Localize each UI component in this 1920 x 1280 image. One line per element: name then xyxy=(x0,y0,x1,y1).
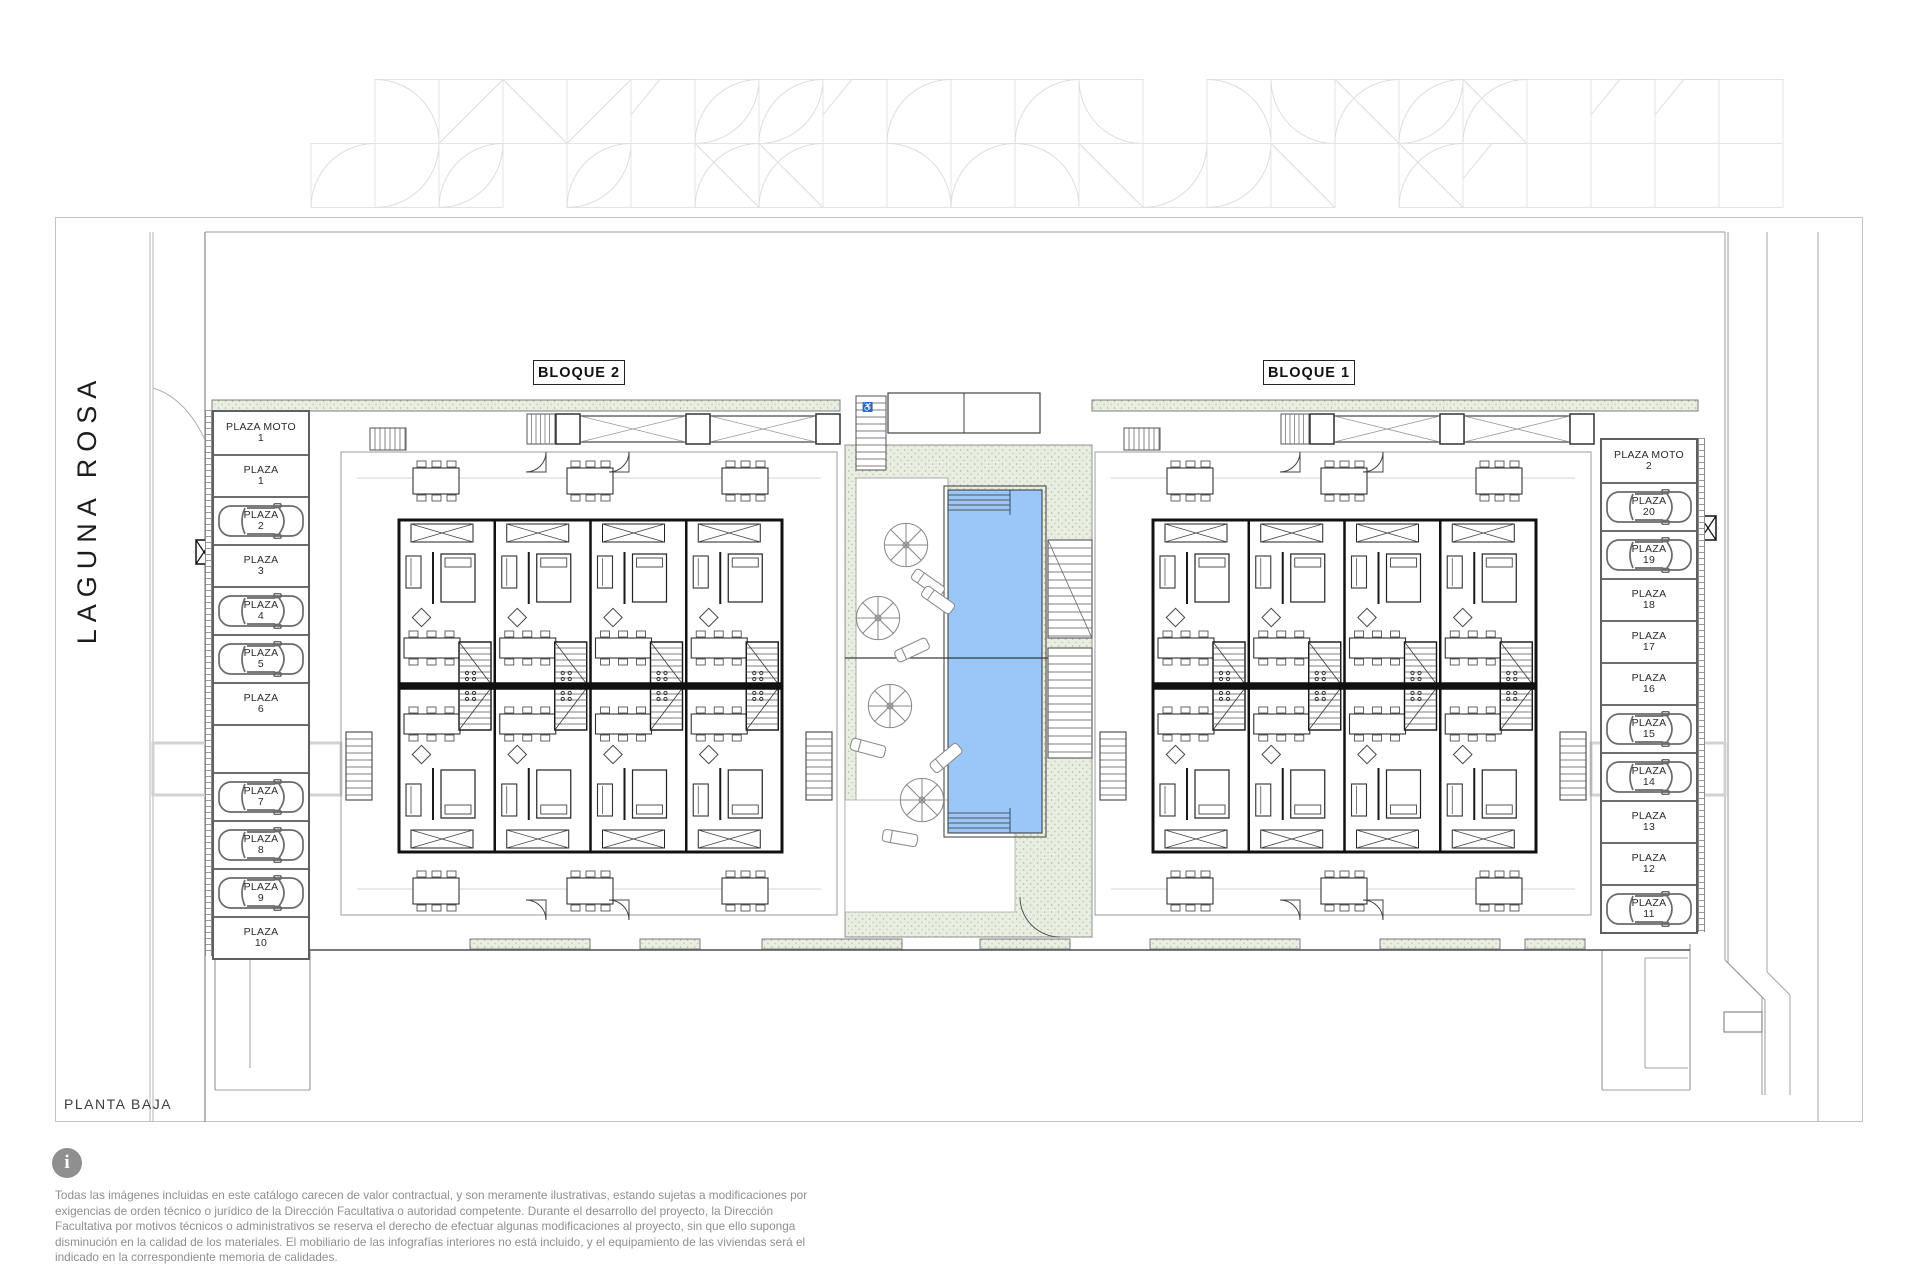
parking-slot-label: PLAZA7 xyxy=(244,786,279,808)
parking-slot-plaza-15: PLAZA15 xyxy=(1602,704,1696,752)
parking-slot-label: PLAZA4 xyxy=(244,600,279,622)
parking-slot-plaza-13: PLAZA13 xyxy=(1602,800,1696,842)
parking-slot-plaza-2: PLAZA2 xyxy=(214,496,308,544)
parking-slot-plaza-11: PLAZA11 xyxy=(1602,884,1696,932)
parking-slot-plaza-moto-1: PLAZA MOTO1 xyxy=(214,412,308,454)
pergola-band xyxy=(527,414,840,444)
block-1-label: BLOQUE 1 xyxy=(1263,360,1355,385)
parking-slot-plaza-8: PLAZA8 xyxy=(214,820,308,868)
parking-edge-ticks-right xyxy=(1698,438,1705,932)
svg-text:♿: ♿ xyxy=(862,401,873,412)
parking-slot-label: PLAZA14 xyxy=(1632,766,1667,788)
parking-slot-label: PLAZA16 xyxy=(1632,673,1667,695)
parking-slot-plaza-12: PLAZA12 xyxy=(1602,842,1696,884)
parking-slot-label: PLAZA18 xyxy=(1632,589,1667,611)
parking-slot-label: PLAZA8 xyxy=(244,834,279,856)
parking-slot-label: PLAZA19 xyxy=(1632,544,1667,566)
courtyard: ♿ xyxy=(845,393,1092,937)
parking-slot-plaza-4: PLAZA4 xyxy=(214,586,308,634)
street-name-label: LAGUNA ROSA xyxy=(72,349,104,669)
building-block xyxy=(341,428,837,920)
parking-slot-label: PLAZA13 xyxy=(1632,811,1667,833)
parking-slot-label: PLAZA11 xyxy=(1632,898,1667,920)
parking-slot-label: PLAZA MOTO1 xyxy=(226,422,296,444)
parking-slot-label: PLAZA3 xyxy=(244,555,279,577)
parking-slot-plaza-9: PLAZA9 xyxy=(214,868,308,916)
parking-slot-plaza-14: PLAZA14 xyxy=(1602,752,1696,800)
parking-slot-plaza-10: PLAZA10 xyxy=(214,916,308,958)
pergola-band xyxy=(1281,414,1594,444)
parking-slot-label: PLAZA2 xyxy=(244,510,279,532)
block-2-label: BLOQUE 2 xyxy=(533,360,625,385)
parking-slot-label: PLAZA12 xyxy=(1632,853,1667,875)
parking-corridor xyxy=(214,724,308,772)
parking-slot-plaza-20: PLAZA20 xyxy=(1602,482,1696,530)
parking-slot-plaza-17: PLAZA17 xyxy=(1602,620,1696,662)
parasol-icon xyxy=(856,596,899,639)
parking-slot-label: PLAZA MOTO2 xyxy=(1614,450,1684,472)
parking-slot-plaza-6: PLAZA6 xyxy=(214,682,308,724)
parking-slot-plaza-3: PLAZA3 xyxy=(214,544,308,586)
parking-slot-plaza-7: PLAZA7 xyxy=(214,772,308,820)
plan-title: PLANTA BAJA xyxy=(64,1096,172,1112)
parasol-icon xyxy=(884,523,927,566)
parasol-icon xyxy=(900,778,943,821)
floor-plan-page: ♿ LAGUNA ROSA BLOQUE 2 BLOQUE 1 PLAZA MO… xyxy=(0,0,1920,1280)
disclaimer-text: Todas las imágenes incluidas en este cat… xyxy=(55,1188,827,1266)
parking-slot-plaza-5: PLAZA5 xyxy=(214,634,308,682)
parasol-icon xyxy=(868,684,911,727)
parking-slot-label: PLAZA1 xyxy=(244,465,279,487)
parking-edge-ticks-left xyxy=(205,410,212,956)
parking-slot-label: PLAZA9 xyxy=(244,882,279,904)
info-icon: i xyxy=(52,1148,82,1178)
parking-slot-label: PLAZA17 xyxy=(1632,631,1667,653)
parking-column-right: PLAZA MOTO2PLAZA20PLAZA19PLAZA18PLAZA17P… xyxy=(1600,438,1698,934)
parking-slot-plaza-18: PLAZA18 xyxy=(1602,578,1696,620)
parking-slot-label: PLAZA10 xyxy=(244,927,279,949)
parking-slot-plaza-1: PLAZA1 xyxy=(214,454,308,496)
parking-slot-plaza-moto-2: PLAZA MOTO2 xyxy=(1602,440,1696,482)
parking-slot-label: PLAZA5 xyxy=(244,648,279,670)
parking-slot-plaza-16: PLAZA16 xyxy=(1602,662,1696,704)
parking-slot-label: PLAZA20 xyxy=(1632,496,1667,518)
parking-slot-label: PLAZA15 xyxy=(1632,718,1667,740)
parking-slot-label: PLAZA6 xyxy=(244,693,279,715)
building-block xyxy=(1095,428,1591,920)
parking-column-left: PLAZA MOTO1PLAZA1PLAZA2PLAZA3PLAZA4PLAZA… xyxy=(212,410,310,960)
parking-slot-plaza-19: PLAZA19 xyxy=(1602,530,1696,578)
